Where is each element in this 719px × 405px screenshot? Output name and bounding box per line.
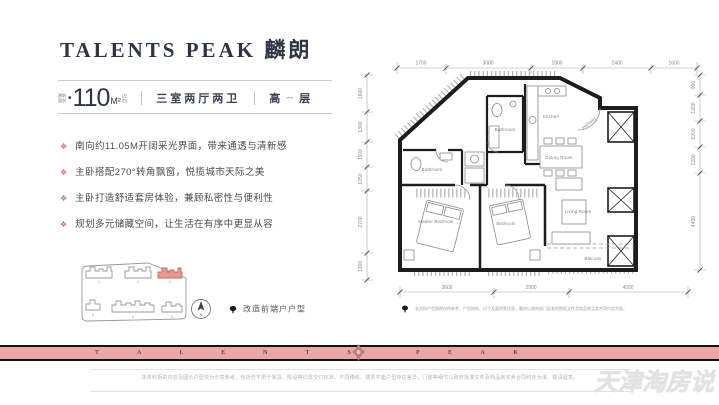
flower-bullet-icon: ❖: [60, 141, 67, 153]
page-title: TALENTS PEAK 麟朗: [60, 34, 350, 64]
legend: 改造前端户户型: [230, 304, 306, 314]
svg-text:2900: 2900: [525, 285, 536, 291]
svg-text:4: 4: [171, 315, 173, 319]
room-label-dining-room: Dining Room: [545, 155, 573, 160]
area-prefix: 建筑面积: [58, 93, 66, 103]
svg-text:1100: 1100: [358, 149, 364, 160]
toilet: [492, 104, 502, 117]
room-label-bedroom: Bedroom: [496, 221, 515, 226]
flower-bullet-icon: ❖: [60, 193, 67, 205]
svg-text:2400: 2400: [611, 61, 622, 67]
svg-text:5: 5: [132, 315, 134, 319]
feature-list: ❖ 南向约11.05M开阔采光界面，带来通透与清新感 ❖ 主卧搭配270°转角飘…: [60, 141, 345, 245]
svg-text:本资料户型图例仅供参考，户型结构、尺寸及面积等信息，最终以政: 本资料户型图例仅供参考，户型结构、尺寸及面积等信息，最终以政府部门批准的图纸文件…: [415, 305, 627, 311]
highlighted-building: [158, 268, 182, 278]
site-buildings: [86, 267, 182, 312]
room-label-hallway: Hallway: [581, 115, 598, 130]
svg-text:3000: 3000: [482, 61, 493, 67]
layout-label: 三室两厅两卫: [156, 90, 240, 106]
svg-text:3600: 3600: [441, 285, 452, 291]
floor-plan: 1700 3000 1800 2400 1600 3600 2900 4550 …: [345, 18, 719, 318]
svg-text:900: 900: [691, 81, 697, 90]
flower-bullet-icon: ❖: [60, 167, 67, 179]
banner-letters-left: T A L E N T S: [95, 348, 351, 357]
svg-text:1800: 1800: [551, 61, 562, 67]
divider: [141, 91, 142, 105]
spec-row: 建筑面积 • 110 M² (左右) 三室两厅两卫 高 ⁓ 层: [58, 84, 332, 112]
list-item: ❖ 主卧打造舒适套房体验，兼顾私密性与便利性: [60, 193, 345, 205]
shaft-boxes: [608, 112, 634, 266]
svg-text:1600: 1600: [358, 88, 364, 99]
compass-icon: N: [192, 300, 211, 319]
svg-text:4550: 4550: [622, 285, 633, 291]
svg-text:3: 3: [169, 280, 171, 284]
svg-text:2: 2: [137, 280, 139, 284]
watermark: 天津淘房说: [594, 362, 719, 397]
tree-icon: [402, 306, 408, 311]
floor-label: 高 ⁓ 层: [269, 90, 312, 106]
footer-disclaimer: 本资料相关内容及图示户型仅为示意参考，包括但不限于家具、陈设等均非交付标准。不同…: [90, 374, 630, 381]
svg-text:N: N: [200, 312, 203, 317]
room-label-bathroom-1: Bathroom: [422, 167, 443, 172]
bed-master: [416, 200, 464, 252]
area-value: 110: [73, 86, 110, 110]
dot-icon: •: [68, 93, 72, 104]
sink: [440, 153, 452, 160]
svg-text:1600: 1600: [668, 61, 679, 67]
divider: [254, 91, 255, 105]
crest-icon: [352, 344, 365, 361]
svg-text:1200: 1200: [358, 261, 364, 272]
area-unit: M²: [110, 96, 121, 106]
divider: [90, 369, 630, 370]
room-label-master-bedroom: Master Bedroom: [418, 219, 453, 224]
divider: [58, 80, 332, 81]
toilet: [411, 158, 421, 171]
svg-text:1200: 1200: [691, 154, 697, 165]
building-numbers: 1 2 3 6 5 4: [92, 280, 173, 319]
room-label-balcony: Balcony: [584, 256, 602, 261]
room-label-living-room: Living Room: [565, 209, 592, 214]
room-label-bathroom-2: Bathroom: [495, 127, 516, 132]
divider: [58, 113, 332, 114]
divider: [90, 391, 630, 392]
room-label-kitchen: Kitchen: [543, 114, 559, 119]
svg-text:1200: 1200: [691, 128, 697, 139]
svg-text:1200: 1200: [691, 102, 697, 113]
list-item: ❖ 南向约11.05M开阔采光界面，带来通透与清新感: [60, 141, 345, 153]
svg-text:1300: 1300: [358, 121, 364, 132]
banner-letters-right: P E A K: [416, 348, 518, 357]
site-plan: 1 2 3 6 5 4 N 改造前端户户型: [60, 256, 350, 338]
list-item: ❖ 主卧搭配270°转角飘窗，悦揽城市天际之美: [60, 167, 345, 179]
list-item: ❖ 规划多元储藏空间，让生活在有序中更显从容: [60, 219, 345, 231]
area-note: (左右): [122, 93, 127, 103]
legend-label: 改造前端户户型: [243, 304, 306, 314]
floorplan-note: 本资料户型图例仅供参考，户型结构、尺寸及面积等信息，最终以政府部门批准的图纸文件…: [402, 305, 627, 312]
svg-text:1: 1: [98, 280, 100, 284]
svg-text:2700: 2700: [358, 216, 364, 227]
sofa: [552, 232, 590, 244]
tv-cabinet: [556, 178, 582, 190]
svg-text:6: 6: [92, 313, 94, 317]
svg-text:1050: 1050: [358, 173, 364, 184]
tree-icon: [230, 306, 236, 311]
svg-text:1700: 1700: [415, 61, 426, 67]
brand-banner: T A L E N T S P E A K: [0, 345, 719, 361]
dash-icon: ⁓: [286, 94, 295, 102]
svg-text:4450: 4450: [691, 216, 697, 227]
flower-bullet-icon: ❖: [60, 219, 67, 231]
